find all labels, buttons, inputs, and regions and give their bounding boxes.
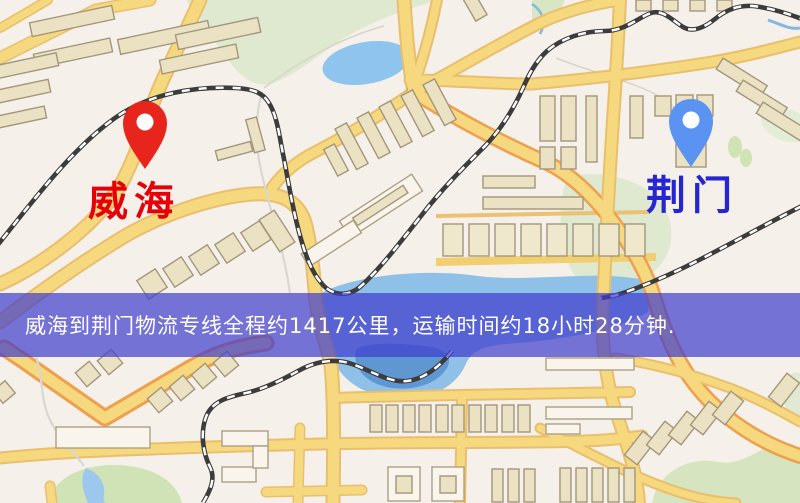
route-info-banner: 威海到荆门物流专线全程约1417公里，运输时间约18小时28分钟.: [0, 293, 800, 357]
origin-pin-hole: [137, 114, 154, 131]
destination-pin-hole: [683, 112, 700, 129]
minor-road: [436, 257, 656, 262]
destination-city-label: 荆门: [646, 176, 738, 216]
origin-city-label: 威海: [88, 182, 180, 222]
route-info-text: 威海到荆门物流专线全程约1417公里，运输时间约18小时28分钟.: [25, 310, 676, 340]
map-graphic: [0, 0, 800, 503]
map: 威海 荆门 威海到荆门物流专线全程约1417公里，运输时间约18小时28分钟.: [0, 0, 800, 503]
